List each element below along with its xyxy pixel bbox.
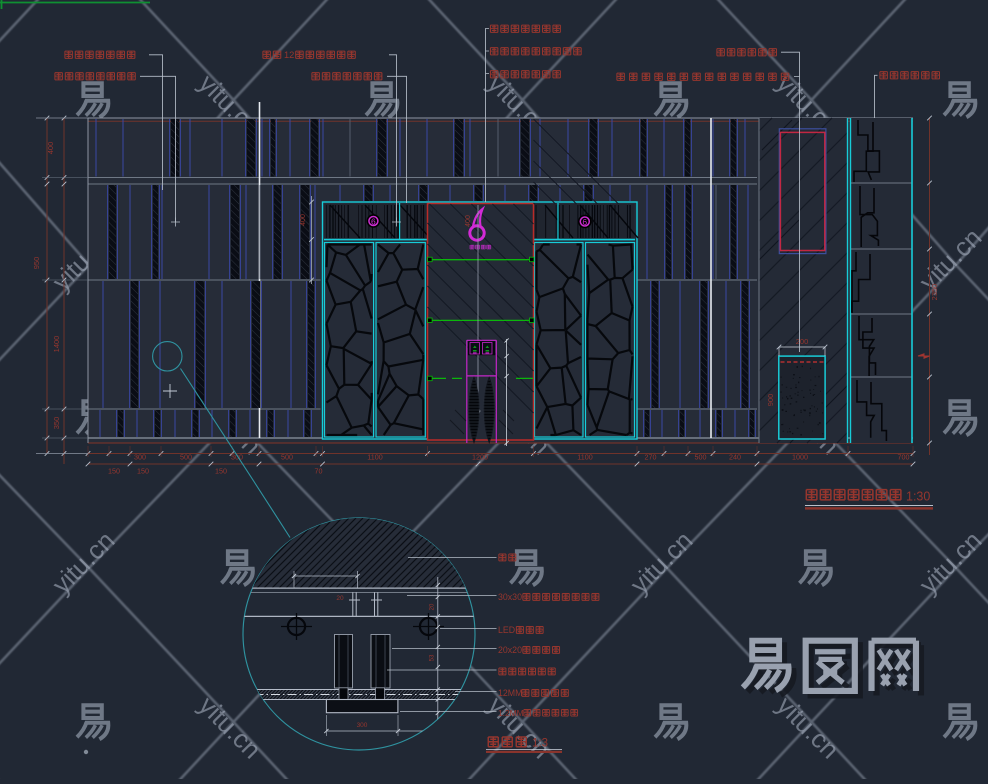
- svg-text:400: 400: [465, 215, 472, 227]
- svg-text:1200: 1200: [472, 452, 488, 461]
- svg-text:150: 150: [108, 467, 120, 476]
- svg-text:300: 300: [231, 452, 243, 461]
- svg-text:6: 6: [371, 216, 376, 226]
- svg-text:LED: LED: [498, 625, 515, 635]
- svg-text:500: 500: [695, 452, 707, 461]
- svg-text:53: 53: [430, 654, 436, 661]
- svg-text:70: 70: [315, 467, 323, 476]
- svg-text:950: 950: [32, 257, 41, 270]
- svg-text:20: 20: [336, 595, 344, 602]
- svg-text:20: 20: [430, 603, 436, 610]
- svg-text:30x30: 30x30: [498, 592, 522, 602]
- svg-text:1400: 1400: [52, 336, 61, 353]
- svg-text:300: 300: [134, 452, 146, 461]
- svg-text:270: 270: [645, 452, 657, 461]
- svg-text:500: 500: [281, 452, 293, 461]
- svg-text:1100: 1100: [577, 452, 592, 461]
- svg-text:12: 12: [284, 50, 294, 60]
- svg-text:400: 400: [300, 214, 307, 226]
- svg-text:1:3: 1:3: [532, 738, 548, 750]
- svg-text:240: 240: [729, 452, 741, 461]
- svg-text:20x20: 20x20: [498, 645, 522, 655]
- svg-text:150: 150: [137, 467, 149, 476]
- svg-text:2350: 2350: [930, 284, 939, 301]
- svg-text:350: 350: [52, 417, 61, 430]
- svg-text:400: 400: [46, 142, 55, 155]
- svg-text:12MM: 12MM: [498, 688, 522, 698]
- svg-text:300: 300: [357, 722, 368, 729]
- svg-text:1:30: 1:30: [906, 490, 930, 504]
- svg-text:500: 500: [180, 452, 192, 461]
- svg-text:1100: 1100: [367, 452, 382, 461]
- svg-text:200: 200: [796, 337, 809, 346]
- svg-text:150: 150: [215, 467, 227, 476]
- svg-text:6: 6: [582, 217, 587, 227]
- svg-text:700: 700: [898, 452, 910, 461]
- svg-text:1.2MM: 1.2MM: [498, 708, 524, 718]
- svg-text:1000: 1000: [792, 452, 808, 461]
- svg-text:900: 900: [766, 394, 775, 407]
